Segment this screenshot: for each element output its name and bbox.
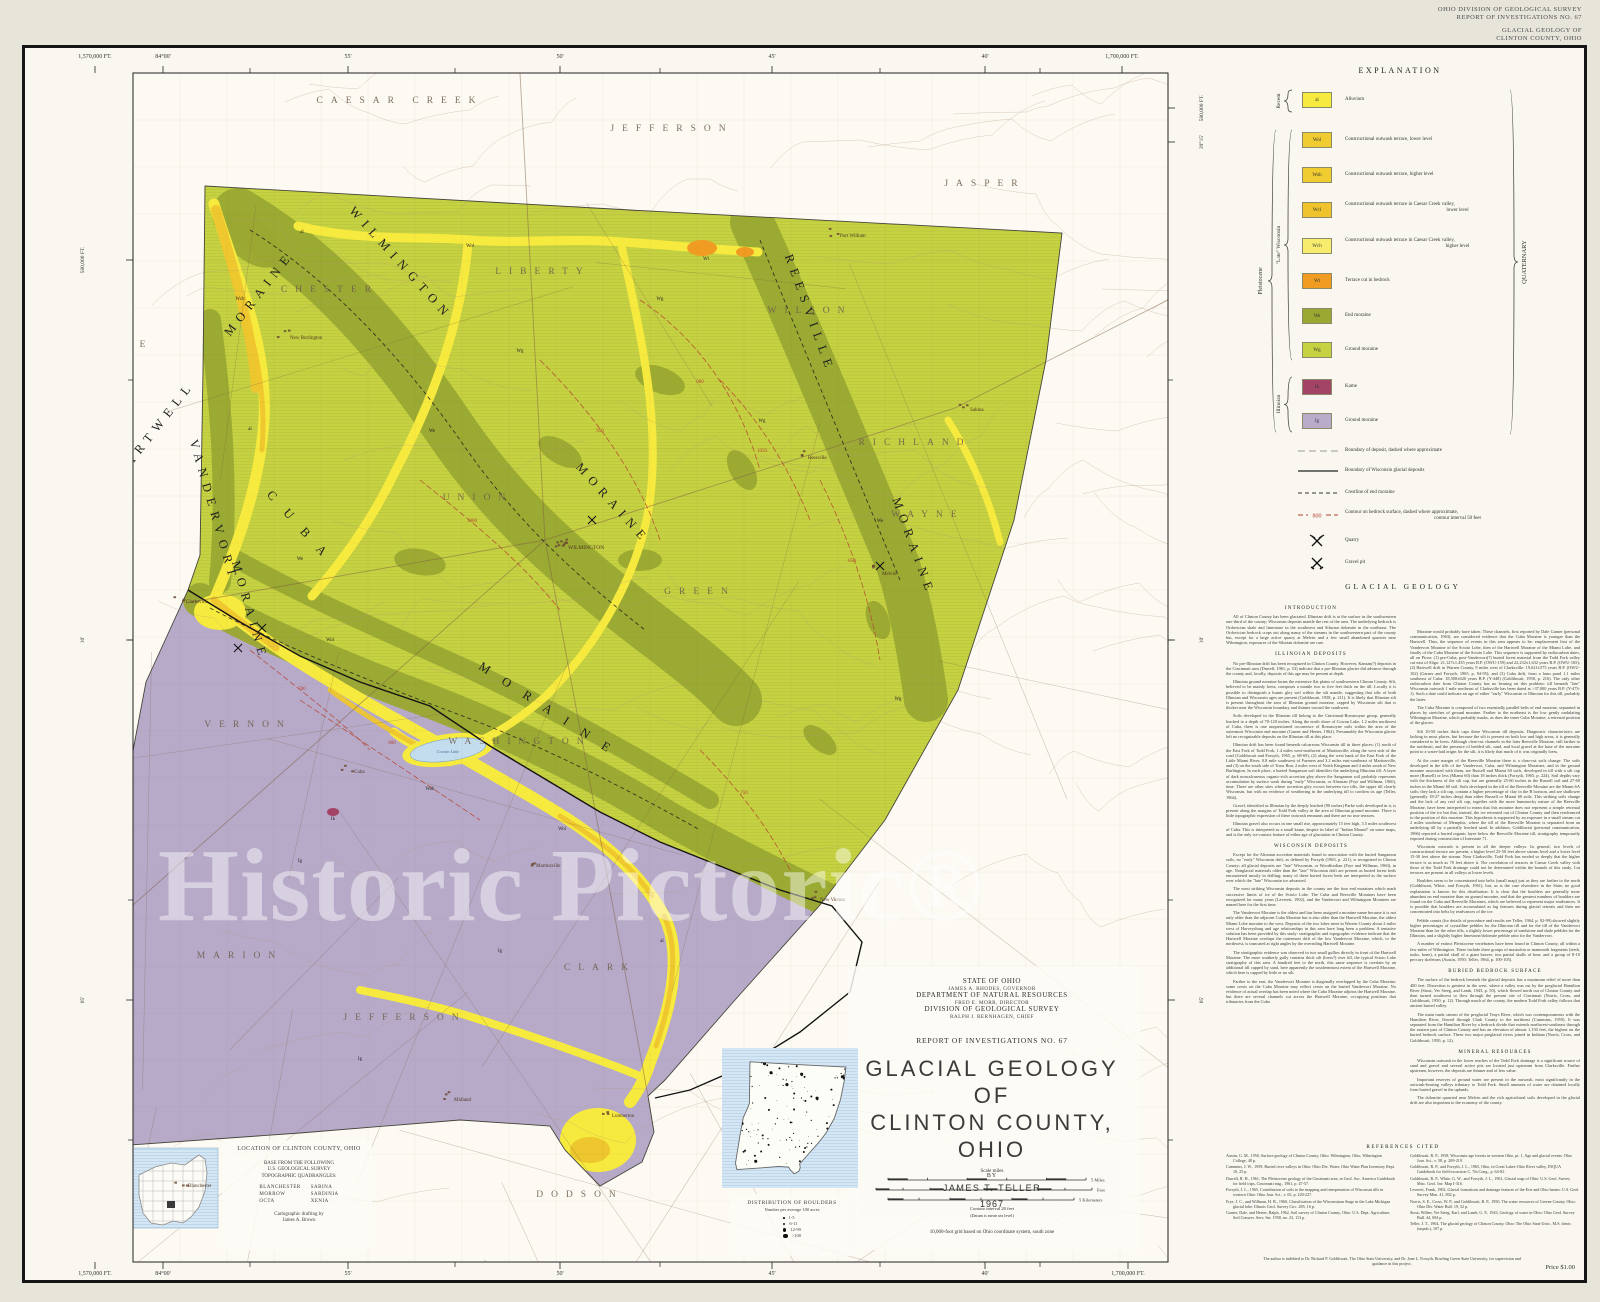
svg-text:Wol: Wol [326, 638, 335, 643]
references-title: REFERENCES CITED [1226, 1144, 1580, 1150]
unit-swatch-Ig: Ig [1302, 413, 1332, 429]
svg-text:1,570,000 FT.: 1,570,000 FT. [78, 1271, 112, 1277]
unit-label-Wg: Ground moraine [1345, 347, 1570, 353]
svg-text:84°00': 84°00' [155, 53, 170, 60]
article-left-para-1: All of Clinton County has been glaciated… [1226, 614, 1396, 645]
dashed-black-icon [1296, 486, 1340, 500]
quarry-icon [1296, 534, 1340, 548]
svg-text:WILMINGTON: WILMINGTON [568, 545, 604, 551]
location-inset [128, 1148, 218, 1231]
unit-swatch-We: We [1302, 308, 1332, 324]
article-left-heading-0: INTRODUCTION [1226, 606, 1396, 611]
unit-swatch-Wch: Wch [1302, 238, 1332, 254]
svg-text:JEFFERSON: JEFFERSON [610, 124, 733, 134]
svg-text:39°15': 39°15' [1198, 135, 1205, 149]
red-contour-icon: 800 [1296, 508, 1340, 522]
svg-text:New Burlington: New Burlington [290, 336, 323, 341]
symbol-label: Boundary of deposit, dashed where approx… [1345, 448, 1570, 454]
base-note: BASE FROM THE FOLLOWING U.S. GEOLOGICAL … [228, 1161, 370, 1180]
article-right-para-7: A number of extinct Pleistocene vertebra… [1410, 941, 1580, 962]
svg-text:800: 800 [388, 741, 396, 746]
svg-text:1050: 1050 [757, 449, 768, 454]
svg-text:Wol: Wol [466, 244, 475, 249]
reference-1: Goldthwait, R. P., and Forsyth, J. L., 1… [1410, 1165, 1580, 1175]
unit-label-Wcl: Constructional outwash terrace in Caesar… [1345, 202, 1570, 214]
unit-label-Wch: Constructional outwash terrace in Caesar… [1345, 238, 1570, 250]
svg-text:850: 850 [848, 559, 856, 564]
article-left-para-6: Illinoian drift has been found beneath c… [1226, 742, 1396, 799]
svg-text:1,570,000 FT.: 1,570,000 FT. [78, 54, 112, 60]
svg-text:Lumberton: Lumberton [612, 1114, 635, 1119]
svg-text:We: We [877, 519, 883, 524]
clinton-county-marker [167, 1201, 175, 1208]
boulder-dot-icon [783, 1223, 785, 1225]
symbol-label: Gravel pit [1345, 560, 1570, 566]
svg-text:05': 05' [1199, 997, 1205, 1004]
svg-text:1,700,000 FT.: 1,700,000 FT. [1111, 1271, 1145, 1277]
drafting-credit: Cartographic drafting by James A. Brown [228, 1212, 370, 1225]
article-left-para-4: Illinoian ground moraine forms the exten… [1226, 679, 1396, 710]
reference-3: Leverett, Frank, 1902, Glacial formation… [1410, 1188, 1580, 1198]
svg-text:05': 05' [80, 997, 86, 1004]
svg-text:CLARK: CLARK [564, 963, 636, 973]
article-left-para-8: Illinoian gravel also occurs in one smal… [1226, 821, 1396, 837]
svg-text:Wg: Wg [759, 419, 767, 424]
unit-label-Woh: Constructional outwash terrace, higher l… [1345, 172, 1570, 178]
unit-label-We: End moraine [1345, 313, 1570, 319]
svg-text:50': 50' [556, 54, 563, 60]
svg-text:Wg: Wg [657, 297, 665, 302]
unit-swatch-Ik: Ik [1302, 379, 1332, 395]
svg-text:Sabina: Sabina [970, 408, 984, 413]
article-right-para-0: Moraine would probably have taken. These… [1410, 629, 1580, 702]
svg-text:Melvin: Melvin [882, 572, 897, 577]
article-right-para-9: The surface of the bedrock beneath the g… [1410, 977, 1580, 1008]
acknowledgment: The author is indebted to Dr. Richard P.… [1262, 1256, 1522, 1266]
by-line: BY [852, 1173, 1132, 1179]
author-name: JAMES T. TELLER [852, 1183, 1132, 1193]
svg-text:MASSIE: MASSIE [71, 340, 154, 350]
unit-swatch-Woh: Woh [1302, 167, 1332, 183]
svg-text:45': 45' [768, 1271, 775, 1277]
boulders-inset [722, 1048, 858, 1188]
svg-text:WASHINGTON: WASHINGTON [448, 737, 591, 747]
article-right-para-10: The main trunk stream of the preglacial … [1410, 1012, 1580, 1043]
report-number: REPORT OF INVESTIGATIONS NO. 67 [852, 1036, 1132, 1045]
corner-header-agency: OHIO DIVISION OF GEOLOGICAL SURVEY [1438, 6, 1582, 14]
article-left-para-13: The stratigraphic evidence was observed … [1226, 950, 1396, 976]
article-right-para-6: Pebble counts (for details of procedure … [1410, 918, 1580, 939]
article-right-heading-11: MINERAL RESOURCES [1410, 1050, 1580, 1055]
explanation-title: EXPLANATION [1290, 66, 1510, 75]
article-column-right: Moraine would probably have taken. These… [1410, 599, 1580, 1109]
gravel-icon [1296, 556, 1340, 570]
unit-label-Ik: Kame [1345, 384, 1570, 390]
unit-swatch-al: al [1302, 92, 1332, 108]
unit-swatch-Wol: Wol [1302, 132, 1332, 148]
svg-text:55': 55' [344, 54, 351, 60]
division-line: DIVISION OF GEOLOGICAL SURVEY [852, 1006, 1132, 1014]
references: REFERENCES CITED Austin, G. M., 1950, Su… [1226, 1144, 1580, 1234]
dept-line: DEPARTMENT OF NATURAL RESOURCES [852, 992, 1132, 1000]
unit-label-Ig: Ground moraine [1345, 418, 1570, 424]
svg-text:Cowan Lake: Cowan Lake [437, 749, 460, 754]
reference-0: Goldthwait, R. P., 1958, Wisconsin age f… [1410, 1154, 1580, 1164]
svg-text:Wol: Wol [558, 827, 567, 832]
svg-text:40': 40' [981, 54, 988, 60]
svg-text:VERNON: VERNON [204, 720, 292, 730]
svg-text:84°00': 84°00' [155, 1270, 170, 1277]
svg-text:Ig: Ig [298, 859, 303, 864]
dashed-gray-icon [1296, 444, 1340, 458]
article-right-para-2: Silt 10-50 inches thick caps these Wisco… [1410, 729, 1580, 755]
svg-text:Wg: Wg [517, 349, 525, 354]
svg-text:Blanchester: Blanchester [188, 1184, 212, 1189]
svg-text:RICHLAND: RICHLAND [858, 438, 971, 448]
svg-text:Cuba: Cuba [354, 770, 365, 775]
location-block: LOCATION OF CLINTON COUNTY, OHIO BASE FR… [228, 1146, 370, 1224]
article-left-para-14: Farther to the east, the Vandervort Mora… [1226, 979, 1396, 1005]
svg-text:40': 40' [981, 1271, 988, 1277]
svg-text:950: 950 [596, 429, 604, 434]
title-block: STATE OF OHIO JAMES A. RHODES, GOVERNOR … [852, 978, 1132, 1209]
reference-5: Stout, Wilber, Ver Steeg, Karl, and Lamb… [1410, 1211, 1580, 1221]
corner-header-title2: CLINTON COUNTY, OHIO [1438, 35, 1582, 43]
quadrangle-list: BLANCHESTER MORROW OCTA SABINA SARDINIA … [228, 1184, 370, 1205]
state-line: STATE OF OHIO [852, 978, 1132, 986]
article-left-heading-9: WISCONSIN DEPOSITS [1226, 844, 1396, 849]
svg-text:55': 55' [344, 1271, 351, 1277]
svg-text:Port William: Port William [840, 234, 866, 239]
location-title: LOCATION OF CLINTON COUNTY, OHIO [228, 1146, 370, 1152]
symbol-label: Boundary of Wisconsin glacial deposits [1345, 468, 1570, 474]
svg-text:45': 45' [768, 54, 775, 60]
svg-text:Woh: Woh [426, 787, 436, 792]
boulders-classes: 1-56-1112-99>100 [783, 1215, 801, 1239]
corner-header-report: REPORT OF INVESTIGATIONS NO. 67 [1438, 14, 1582, 22]
svg-text:"Late" Wisconsin: "Late" Wisconsin [1276, 225, 1282, 264]
unit-swatch-Wg: Wg [1302, 342, 1332, 358]
unit-swatch-Wt: Wt [1302, 273, 1332, 289]
svg-text:JEFFERSON: JEFFERSON [343, 1013, 466, 1023]
article-title: GLACIAL GEOLOGY [1226, 582, 1580, 591]
reference-5: Garner, Dale, and Heeter, Ralph, 1962, S… [1226, 1211, 1396, 1221]
reference-2: Durrell, R. H., 1961, The Pleistocene ge… [1226, 1177, 1396, 1187]
references-column-right: Goldthwait, R. P., 1958, Wisconsin age f… [1410, 1154, 1580, 1234]
boulders-subtitle: Number per average 100 acres [726, 1207, 858, 1212]
price-label: Price $1.00 [1500, 1264, 1575, 1271]
svg-text:We: We [297, 557, 303, 562]
svg-text:Ik: Ik [331, 817, 336, 822]
symbol-label: Quarry [1345, 538, 1570, 544]
reference-0: Austin, G. M., 1950, Surface geology of … [1226, 1154, 1396, 1164]
svg-text:700: 700 [298, 687, 306, 692]
reference-1: Cummins, J. W., 1959, Buried river valle… [1226, 1165, 1396, 1175]
article-right-para-1: The Cuba Moraine is composed of two esse… [1410, 705, 1580, 726]
svg-text:Martinsville: Martinsville [536, 864, 561, 869]
map-title: GLACIAL GEOLOGY OF CLINTON COUNTY, OHIO [852, 1055, 1132, 1163]
article-left-para-12: The Vandervort Moraine is the oldest and… [1226, 910, 1396, 946]
svg-text:10': 10' [1199, 637, 1205, 644]
svg-text:Wg: Wg [895, 697, 903, 702]
reference-4: Norris, S. E., Cross, W. P., and Goldthw… [1410, 1200, 1580, 1210]
corner-header: OHIO DIVISION OF GEOLOGICAL SURVEY REPOR… [1438, 6, 1582, 43]
boulder-dot-icon [783, 1228, 786, 1231]
symbol-label: Contour on bedrock surface, dashed where… [1345, 510, 1570, 522]
svg-text:MARION: MARION [197, 951, 284, 961]
svg-text:Wch: Wch [235, 297, 245, 302]
reference-6: Teller, J. T., 1964, The glacial geology… [1410, 1222, 1580, 1232]
references-column-left: Austin, G. M., 1950, Surface geology of … [1226, 1154, 1396, 1234]
svg-text:1,700,000 FT.: 1,700,000 FT. [1105, 54, 1139, 60]
article-left-para-10: Except for the Altonian accretion materi… [1226, 852, 1396, 883]
svg-text:CAESAR CREEK: CAESAR CREEK [317, 96, 484, 106]
article-right-para-12: Wisconsin outwash in the lower reaches o… [1410, 1058, 1580, 1074]
article-right-para-13: Important reserves of ground water are p… [1410, 1077, 1580, 1093]
article-left-para-3: No pre-Illinoian drift has been recogniz… [1226, 661, 1396, 677]
reference-2: Goldthwait, R. P., White, G. W., and For… [1410, 1177, 1580, 1187]
svg-text:580,000 FT.: 580,000 FT. [1199, 94, 1205, 121]
svg-text:Recent: Recent [1276, 93, 1282, 109]
article-left-heading-2: ILLINOIAN DEPOSITS [1226, 652, 1396, 657]
article-right-para-14: The dolomite quarried near Melvin and th… [1410, 1095, 1580, 1105]
article-column-left: INTRODUCTIONAll of Clinton County has be… [1226, 599, 1396, 1109]
svg-text:Ig: Ig [498, 949, 503, 954]
svg-text:JASPER: JASPER [944, 179, 1025, 189]
svg-text:New Vienna: New Vienna [820, 898, 846, 903]
svg-text:750: 750 [740, 791, 748, 796]
unit-label-Wol: Constructional outwash terrace, lower le… [1345, 137, 1570, 143]
unit-label-al: Alluvium [1345, 97, 1570, 103]
article-right-para-4: Wisconsin outwash is present in all the … [1410, 844, 1580, 875]
boulder-dot-icon [783, 1217, 785, 1219]
article-right-para-3: At the outer margin of the Reesville Mor… [1410, 758, 1580, 841]
svg-text:Midland: Midland [454, 1098, 471, 1103]
solid-black-icon [1296, 464, 1340, 478]
boulders-caption: DISTRIBUTION OF BOULDERS Number per aver… [726, 1200, 858, 1242]
svg-text:UNION: UNION [443, 493, 514, 503]
svg-text:1000: 1000 [467, 519, 478, 524]
article-right-para-5: Boulders seem to be concentrated into be… [1410, 878, 1580, 914]
svg-text:900: 900 [696, 380, 704, 385]
svg-text:10,000-foot grid based on Ohio: 10,000-foot grid based on Ohio coordinat… [930, 1230, 1055, 1235]
reference-3: Forsyth, J. L., 1965, Contribution of so… [1226, 1188, 1396, 1198]
unit-swatch-Wcl: Wcl [1302, 202, 1332, 218]
svg-text:580,000 FT.: 580,000 FT. [80, 246, 86, 273]
boulders-title: DISTRIBUTION OF BOULDERS [726, 1200, 858, 1206]
svg-text:CHESTER: CHESTER [281, 285, 379, 295]
article-left-para-5: Soils developed in the Illinoian till be… [1226, 713, 1396, 739]
unit-label-Wt: Terrace cut in bedrock [1345, 278, 1570, 284]
article: GLACIAL GEOLOGY INTRODUCTIONAll of Clint… [1226, 582, 1580, 1109]
article-left-para-11: The most striking Wisconsin deposits in … [1226, 886, 1396, 907]
map-year: 1967 [852, 1199, 1132, 1209]
article-left-para-7: Gravel, identified as Illinoian by the d… [1226, 803, 1396, 819]
chief-line: RALPH J. BERNHAGEN, CHIEF [852, 1014, 1132, 1021]
svg-text:DODSON: DODSON [536, 1190, 624, 1200]
corner-header-title1: GLACIAL GEOLOGY OF [1438, 27, 1582, 35]
article-right-heading-8: BURIED BEDROCK SURFACE [1410, 969, 1580, 974]
symbol-label: Crestline of end moraine [1345, 490, 1570, 496]
svg-text:LIBERTY: LIBERTY [495, 267, 591, 277]
svg-text:800: 800 [1313, 514, 1322, 520]
reference-4: Frye, J. C., and Willman, H. B., 1960, C… [1226, 1200, 1396, 1210]
boulder-class-3: >100 [783, 1233, 801, 1239]
svg-text:We: We [429, 429, 435, 434]
legend-braces: Recent"Late" WisconsinPleistoceneIllinoi… [1246, 86, 1566, 466]
svg-text:Illinoian: Illinoian [1276, 394, 1282, 413]
svg-text:10': 10' [80, 637, 86, 644]
boulder-dot-icon [783, 1234, 788, 1239]
svg-text:Wt: Wt [703, 257, 710, 262]
svg-text:Reesville: Reesville [808, 456, 827, 461]
svg-text:GREEN: GREEN [664, 587, 736, 597]
svg-text:Pleistocene: Pleistocene [1258, 267, 1264, 295]
svg-text:Clarksville: Clarksville [186, 600, 209, 605]
svg-text:(Datum is mean sea level): (Datum is mean sea level) [970, 1213, 1014, 1218]
svg-text:Ig: Ig [358, 1057, 363, 1062]
svg-text:50': 50' [556, 1271, 563, 1277]
